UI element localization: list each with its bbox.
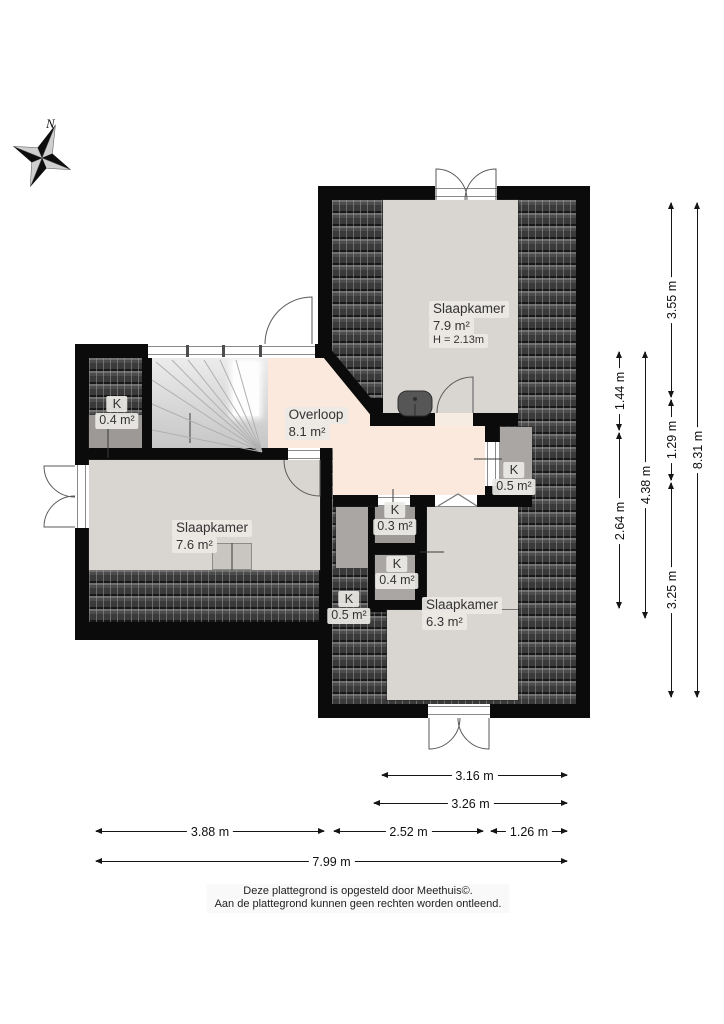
closet-label: K 0.3 m² (373, 501, 416, 536)
room-area: 6.3 m² (422, 614, 467, 630)
footer-line1: Deze plattegrond is opgesteld door Meeth… (215, 885, 502, 898)
closet-letter: K (339, 591, 360, 607)
window-door-swing (265, 297, 312, 344)
arrow-down-icon (668, 474, 674, 481)
french-doors-bottom-opening (428, 704, 490, 718)
arrow-left-icon (95, 858, 102, 864)
dimension-value: 2.52 m (385, 825, 431, 839)
arrow-left-icon (373, 800, 380, 806)
roof-slope-hatch-left-wing-south (89, 570, 319, 622)
closet-area: 0.4 m² (375, 573, 418, 589)
french-door-left-swing (44, 466, 75, 527)
room-name: Slaapkamer (172, 520, 252, 537)
dimension-value: 3.25 m (665, 567, 679, 613)
footer-line2: Aan de plattegrond kunnen geen rechten w… (215, 898, 502, 911)
footer-disclaimer: Deze plattegrond is opgesteld door Meeth… (207, 884, 510, 913)
wall-bedroom76-north (89, 448, 320, 460)
closet-letter: K (504, 462, 525, 478)
arrow-right-icon (561, 772, 568, 778)
wall-corner-patch (370, 398, 383, 426)
dimension-value: 4.38 m (639, 462, 653, 508)
closet-label: K 0.4 m² (375, 555, 418, 590)
dimension-line-horizontal: 2.52 m (334, 831, 483, 832)
room-name: Slaapkamer (429, 301, 509, 318)
room-label: Slaapkamer 7.9 m² H = 2.13m (429, 301, 509, 348)
room-label: Slaapkamer 6.3 m² (422, 597, 502, 630)
arrow-down-icon (694, 691, 700, 698)
dimension-line-horizontal: 3.88 m (96, 831, 324, 832)
closet-area: 0.3 m² (373, 519, 416, 535)
room-area: 8.1 m² (285, 424, 330, 440)
closet-letter: K (107, 396, 128, 412)
dimension-line-horizontal: 7.99 m (96, 861, 567, 862)
closet-strip-floor (336, 507, 372, 568)
room-name: Slaapkamer (422, 597, 502, 614)
dimension-value: 1.26 m (506, 825, 552, 839)
room-area: 7.6 m² (172, 537, 217, 553)
dimension-line-vertical: 3.55 m (671, 203, 672, 397)
bedroom76-floor (89, 460, 320, 570)
arrow-right-icon (477, 828, 484, 834)
dimension-line-vertical: 1.44 m (619, 352, 620, 430)
arrow-left-icon (381, 772, 388, 778)
dimension-line-vertical: 4.38 m (645, 352, 646, 618)
room-height: H = 2.13m (429, 334, 488, 348)
arrow-down-icon (616, 424, 622, 431)
dimension-line-vertical: 1.29 m (671, 400, 672, 480)
arrow-up-icon (616, 432, 622, 439)
closet-label: K 0.5 m² (327, 590, 370, 625)
closet-label: K 0.4 m² (95, 395, 138, 430)
arrow-up-icon (616, 351, 622, 358)
bedroom63-door-opening (435, 495, 477, 507)
french-doors-left-opening (75, 465, 89, 528)
arrow-left-icon (95, 828, 102, 834)
window-top-left (148, 344, 315, 358)
arrow-right-icon (561, 828, 568, 834)
arrow-down-icon (668, 691, 674, 698)
dimension-line-horizontal: 3.16 m (382, 775, 567, 776)
room-area: 7.9 m² (429, 318, 474, 334)
arrow-down-icon (616, 602, 622, 609)
french-doors-top-opening (435, 186, 497, 200)
dimension-line-horizontal: 3.26 m (374, 803, 567, 804)
room-label: Overloop 8.1 m² (285, 407, 348, 440)
dimension-value: 3.16 m (451, 769, 497, 783)
closet-letter: K (387, 556, 408, 572)
wall-corridor-east-upper (485, 413, 500, 442)
closet-area: 0.4 m² (95, 413, 138, 429)
closet-letter: K (385, 502, 406, 518)
room-label: Slaapkamer 7.6 m² (172, 520, 252, 553)
dimension-value: 7.99 m (308, 855, 354, 869)
arrow-up-icon (668, 399, 674, 406)
arrow-down-icon (668, 391, 674, 398)
arrow-up-icon (668, 482, 674, 489)
dimension-line-vertical: 3.25 m (671, 483, 672, 697)
arrow-up-icon (668, 202, 674, 209)
compass-north-label: N (46, 116, 55, 132)
arrow-right-icon (561, 858, 568, 864)
wall-closet-stairs (142, 358, 152, 448)
dimension-value: 3.26 m (447, 797, 493, 811)
dimension-line-vertical: 2.64 m (619, 433, 620, 608)
french-door-bottom-swing (429, 718, 489, 749)
arrow-down-icon (642, 612, 648, 619)
closet-area: 0.5 m² (492, 479, 535, 495)
arrow-up-icon (642, 351, 648, 358)
dimension-line-vertical: 8.31 m (697, 203, 698, 697)
arrow-left-icon (333, 828, 340, 834)
arrow-right-icon (561, 800, 568, 806)
bedroom79-door-opening (435, 413, 473, 426)
dimension-value: 8.31 m (691, 427, 705, 473)
arrow-right-icon (318, 828, 325, 834)
room-name: Overloop (285, 407, 348, 424)
dimension-value: 3.88 m (187, 825, 233, 839)
dimension-value: 1.29 m (665, 417, 679, 463)
dimension-value: 1.44 m (613, 368, 627, 414)
arrow-left-icon (490, 828, 497, 834)
closet-label: K 0.5 m² (492, 461, 535, 496)
bedroom76-door-opening (288, 448, 320, 460)
dimension-value: 3.55 m (665, 277, 679, 323)
arrow-up-icon (694, 202, 700, 209)
dimension-line-horizontal: 1.26 m (491, 831, 567, 832)
dimension-value: 2.64 m (613, 497, 627, 543)
floorplan-page: N (0, 0, 724, 1024)
staircase-landing (233, 362, 259, 416)
wall-corridor-south (333, 495, 532, 507)
closet-area: 0.5 m² (327, 608, 370, 624)
